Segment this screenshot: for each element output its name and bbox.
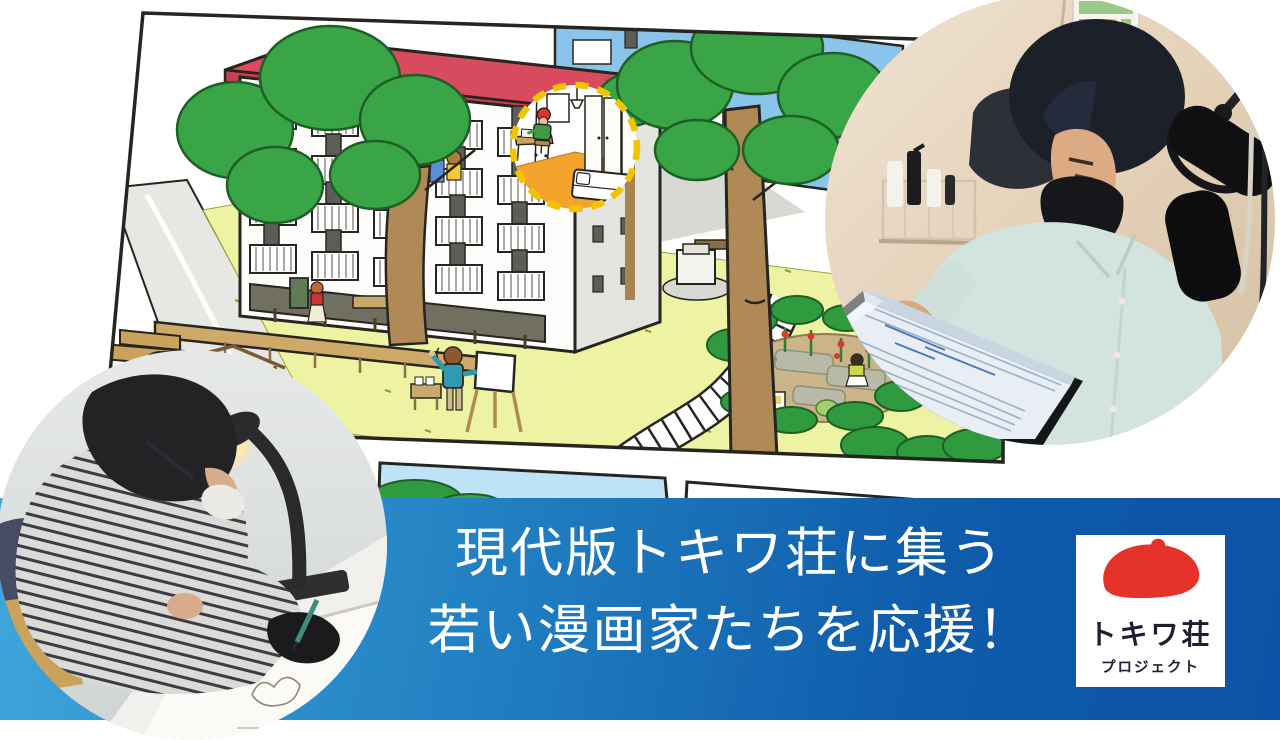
red-beret-icon	[1092, 535, 1210, 611]
tokiwaso-project-logo: トキワ荘 プロジェクト	[1076, 535, 1225, 687]
banner-line-2: 若い漫画家たちを応援！	[390, 593, 1070, 670]
entrance-resident	[308, 282, 326, 322]
logo-subtitle: プロジェクト	[1101, 656, 1200, 677]
banner-line-1: 現代版トキワ荘に集う	[390, 516, 1070, 593]
photo-artist-drawing	[0, 350, 387, 740]
thumbnail: 現代版トキワ荘に集う 若い漫画家たちを応援！ トキワ荘 プロジェクト	[0, 0, 1280, 720]
banner-text: 現代版トキワ荘に集う 若い漫画家たちを応援！	[390, 516, 1070, 670]
photo-artist-pen-display	[825, 0, 1275, 445]
hand	[167, 593, 203, 619]
logo-title: トキワ荘	[1088, 613, 1212, 653]
